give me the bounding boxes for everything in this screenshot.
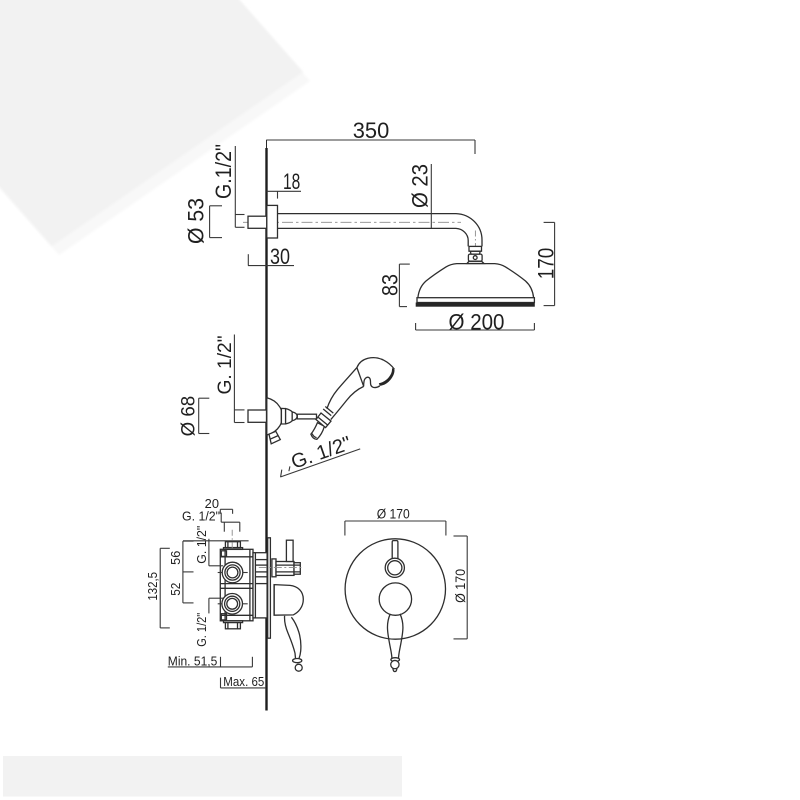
svg-text:132,5: 132,5 — [145, 572, 160, 601]
svg-text:30: 30 — [270, 244, 290, 269]
svg-text:Min. 51,5: Min. 51,5 — [168, 654, 218, 669]
svg-text:Ø 53: Ø 53 — [184, 198, 209, 244]
svg-text:Ø 170: Ø 170 — [453, 569, 468, 603]
svg-text:G. 1/2": G. 1/2" — [194, 526, 209, 564]
svg-text:Max. 65: Max. 65 — [223, 674, 264, 689]
svg-text:G. 1/2": G. 1/2" — [194, 613, 209, 647]
svg-text:Ø 200: Ø 200 — [449, 310, 505, 335]
svg-text:Ø 68: Ø 68 — [179, 396, 200, 437]
svg-text:G. 1/2": G. 1/2" — [215, 336, 236, 395]
svg-text:Ø 170: Ø 170 — [377, 507, 410, 522]
svg-text:170: 170 — [534, 248, 559, 280]
svg-text:83: 83 — [378, 274, 403, 296]
svg-text:18: 18 — [283, 169, 300, 194]
svg-text:G.1/2": G.1/2" — [211, 144, 236, 199]
svg-text:G. 1/2": G. 1/2" — [182, 508, 220, 523]
svg-text:350: 350 — [353, 118, 390, 143]
svg-text:Ø 23: Ø 23 — [408, 164, 433, 208]
svg-text:56: 56 — [168, 551, 183, 565]
svg-text:52: 52 — [168, 583, 183, 596]
